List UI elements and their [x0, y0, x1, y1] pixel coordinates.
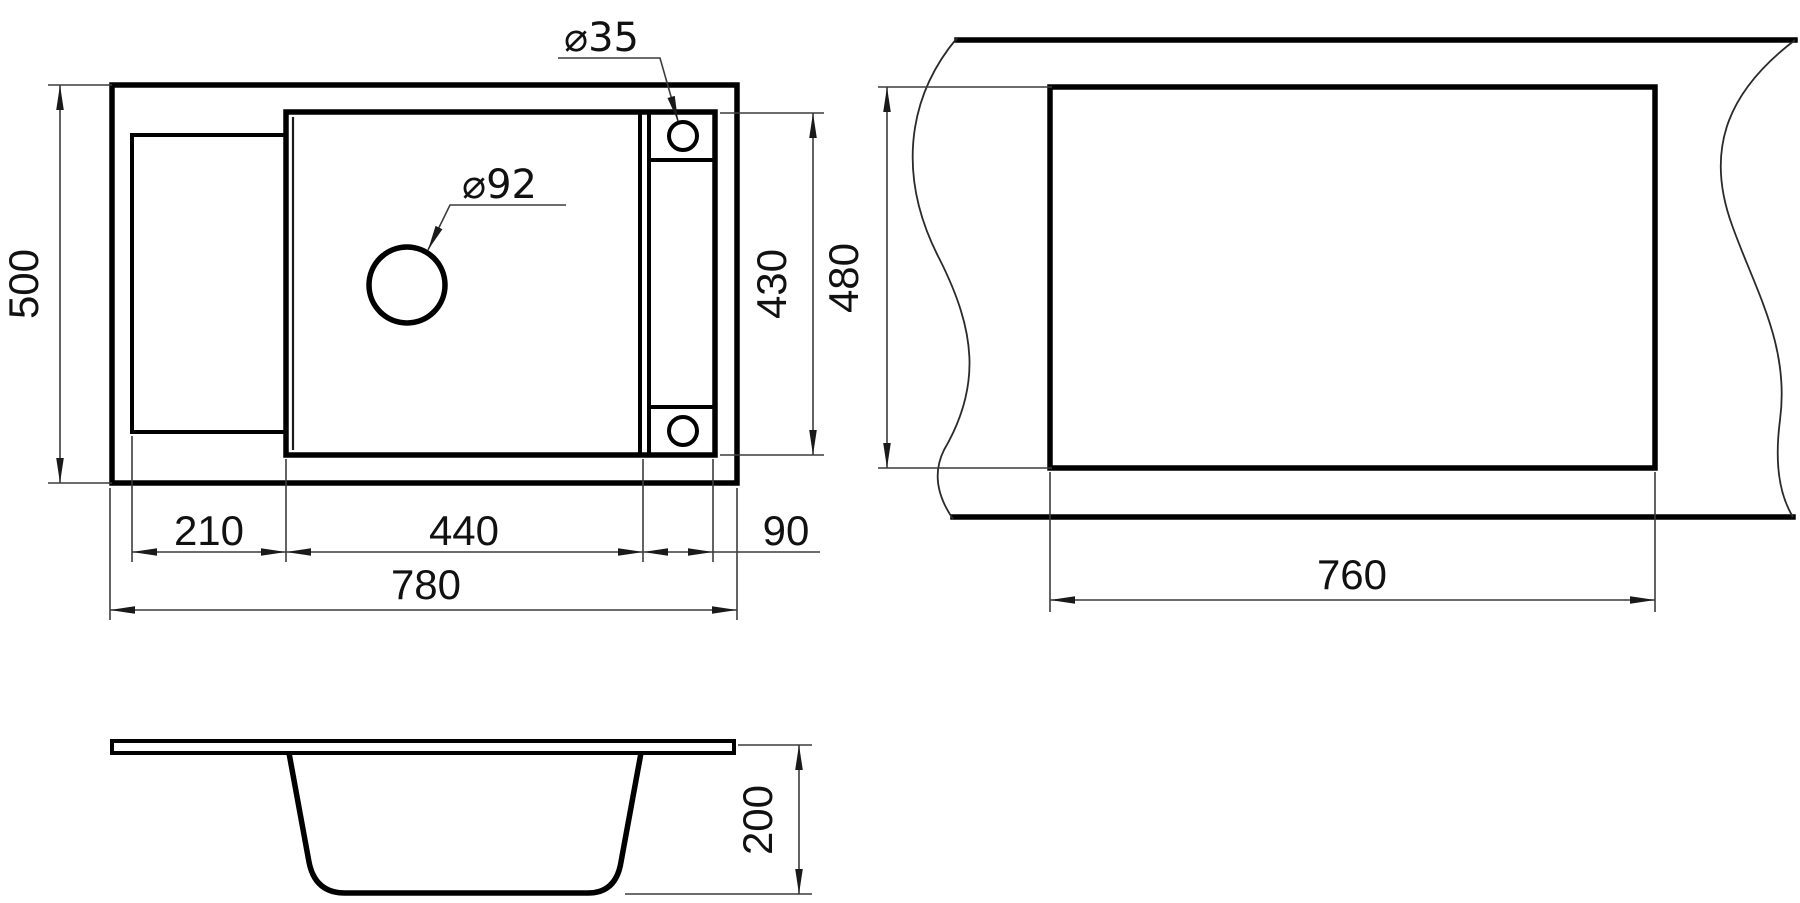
- dim-480: 480: [820, 243, 867, 313]
- dim-430: 430: [748, 249, 795, 319]
- sink-dimension-drawing: ⌀35 ⌀92 500 430 210 440 90 780: [0, 0, 1800, 903]
- cutout-view: 480 760: [820, 38, 1795, 612]
- section-rim-flange: [112, 741, 734, 753]
- break-line-left: [913, 38, 970, 519]
- dim-760: 760: [1317, 551, 1387, 598]
- plan-view: ⌀35 ⌀92 500 430 210 440 90 780: [0, 15, 824, 620]
- dim-90: 90: [763, 507, 810, 554]
- label-d92: ⌀92: [462, 162, 537, 208]
- label-d35: ⌀35: [564, 15, 639, 61]
- dim-500: 500: [0, 249, 47, 319]
- dim-440: 440: [429, 507, 499, 554]
- technical-drawing-page: ⌀35 ⌀92 500 430 210 440 90 780: [0, 0, 1800, 903]
- section-view: 200: [112, 741, 812, 894]
- break-line-right: [1721, 40, 1795, 517]
- dim-200: 200: [734, 785, 781, 855]
- dim-210: 210: [174, 507, 244, 554]
- cutout-rect: [1050, 87, 1655, 468]
- dim-780: 780: [391, 561, 461, 608]
- section-bowl-profile: [289, 753, 641, 893]
